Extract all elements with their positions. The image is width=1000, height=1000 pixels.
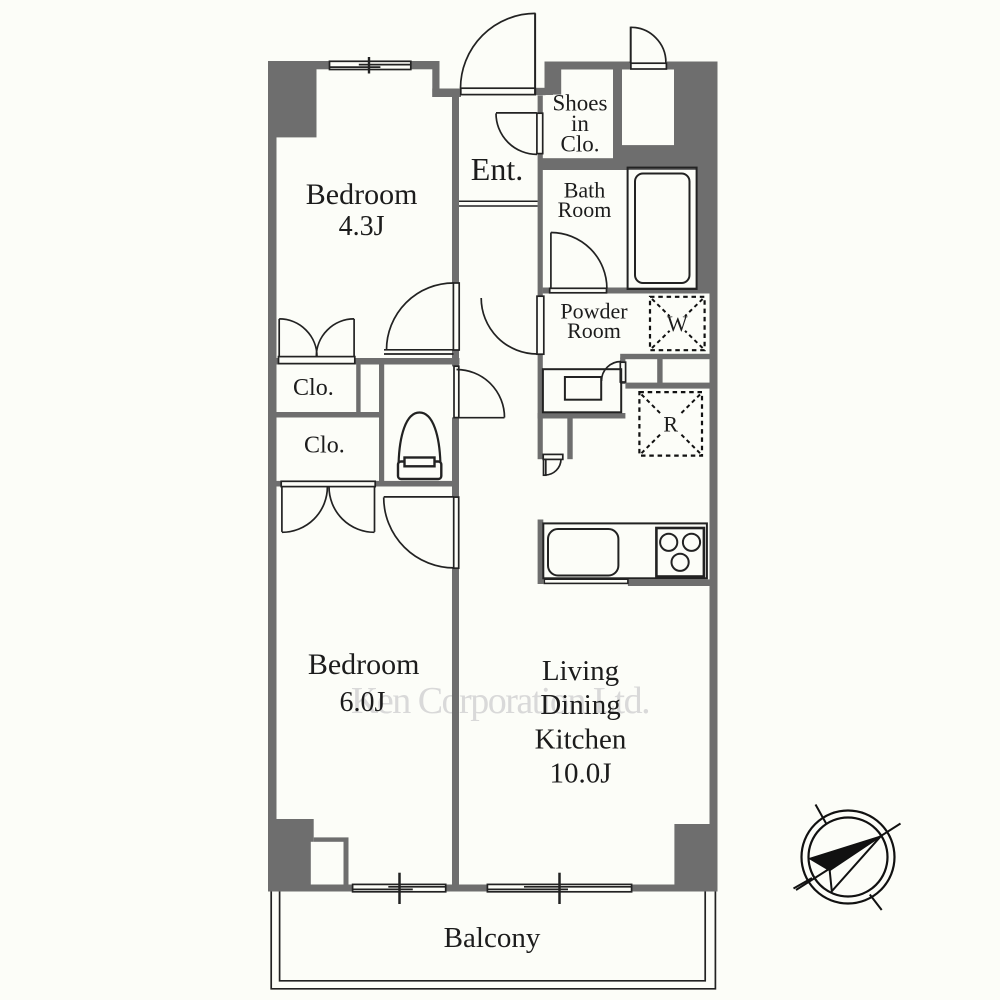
svg-text:R: R — [663, 412, 678, 437]
svg-text:W: W — [667, 311, 688, 336]
svg-text:Living: Living — [542, 655, 619, 687]
svg-text:Kitchen: Kitchen — [535, 723, 627, 755]
svg-text:Clo.: Clo. — [304, 433, 345, 459]
svg-text:Clo.: Clo. — [561, 132, 600, 157]
svg-text:Dining: Dining — [540, 689, 621, 721]
svg-text:4.3J: 4.3J — [339, 211, 385, 242]
svg-text:Ent.: Ent. — [471, 151, 523, 187]
svg-text:6.0J: 6.0J — [340, 687, 386, 718]
svg-text:Clo.: Clo. — [293, 375, 334, 401]
svg-text:Room: Room — [567, 318, 621, 343]
svg-text:Balcony: Balcony — [444, 922, 541, 954]
svg-text:10.0J: 10.0J — [549, 758, 611, 790]
svg-text:Bedroom: Bedroom — [306, 178, 418, 211]
svg-text:Room: Room — [558, 197, 612, 222]
svg-text:Bedroom: Bedroom — [308, 648, 420, 681]
